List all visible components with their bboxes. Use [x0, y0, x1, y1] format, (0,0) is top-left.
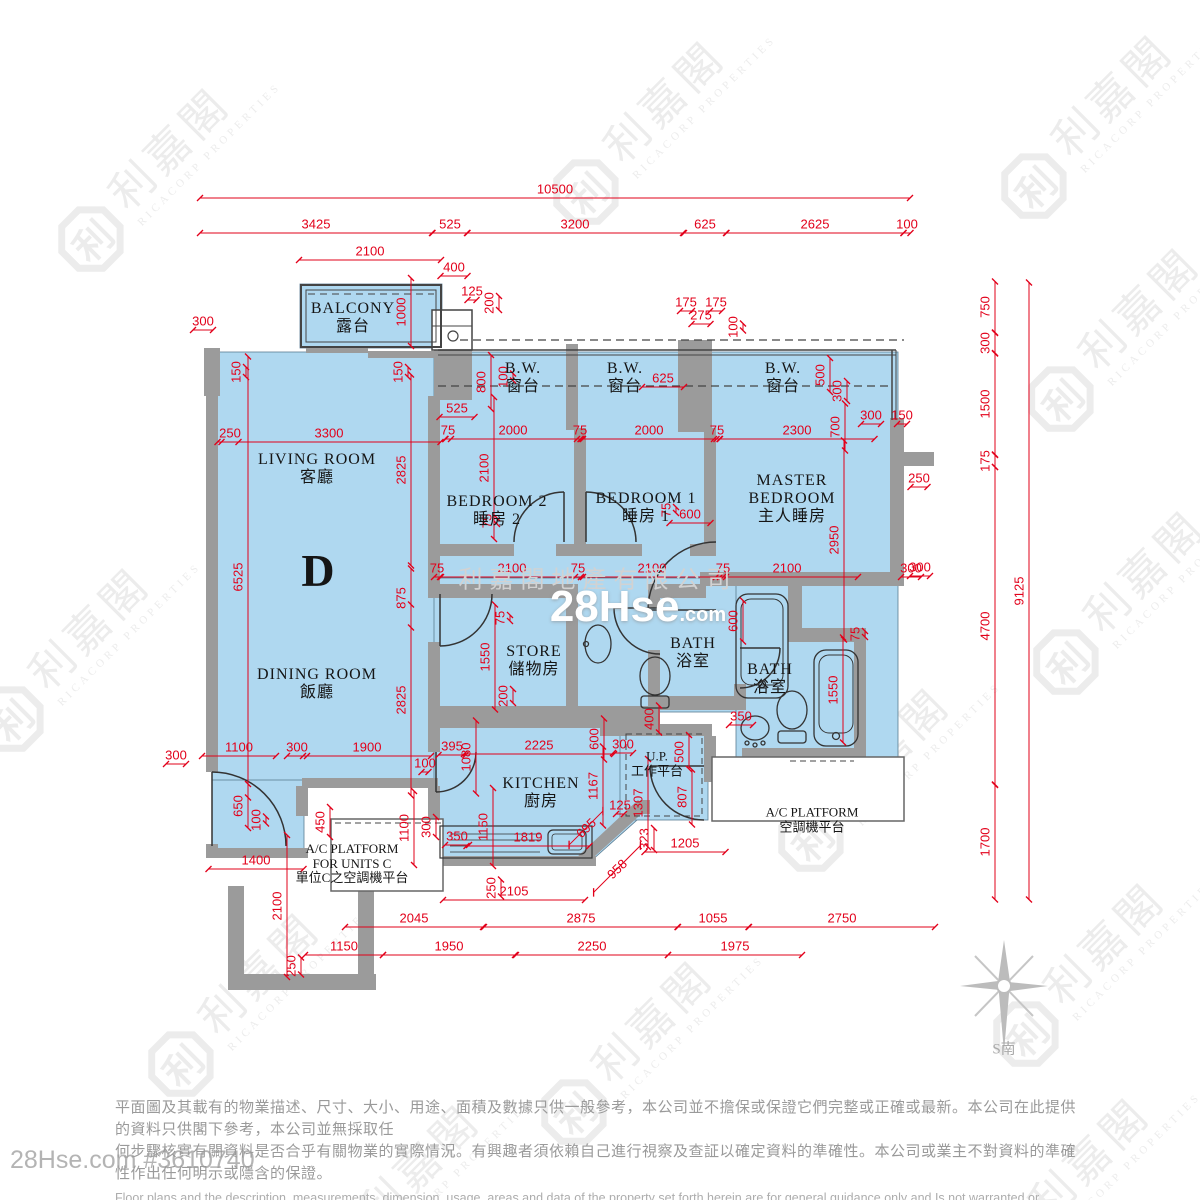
- room-label-line: MASTER: [748, 472, 835, 490]
- room-label: STORE儲物房: [506, 643, 561, 679]
- room-label: B.W.窗台: [765, 360, 801, 396]
- room-label-line: BATH: [747, 661, 793, 679]
- dim-label: 300: [979, 332, 992, 354]
- room-label: MASTERBEDROOM主人睡房: [748, 472, 835, 526]
- dim-label: 3425: [302, 218, 331, 231]
- dim-label: 150: [392, 361, 405, 383]
- floorplan-page: 利利嘉閣RICACORP PROPERTIES利利嘉閣RICACORP PROP…: [0, 0, 1200, 1200]
- dim-label: 75: [441, 424, 455, 437]
- dim-label: 1205: [671, 837, 700, 850]
- room-label-line: 浴室: [747, 679, 793, 697]
- room-label-line: 空調機平台: [766, 820, 859, 835]
- dim-label: 875: [395, 587, 408, 609]
- dim-label: 2825: [395, 456, 408, 485]
- dim-label: 250: [219, 427, 241, 440]
- dim-label: 2250: [578, 940, 607, 953]
- dim-label: 200: [483, 292, 496, 314]
- dim-label: 300: [860, 409, 882, 422]
- room-label: BALCONY露台: [311, 300, 395, 336]
- room-label-line: 工作平台: [631, 764, 683, 779]
- dim-label: 250: [485, 877, 498, 899]
- dim-label: 1975: [721, 940, 750, 953]
- dim-label: 1100: [225, 741, 253, 754]
- dim-label: 175: [979, 450, 992, 472]
- room-label-line: FOR UNITS C: [296, 857, 409, 872]
- dim-label: 75: [710, 424, 724, 437]
- room-label-line: 睡房 1: [595, 508, 696, 526]
- room-label-line: 客廳: [258, 469, 376, 487]
- disclaimer: 平面圖及其載有的物業描述、尺寸、大小、用途、面積及數據只供一般參考，本公司並不擔…: [115, 1097, 1091, 1200]
- dim-label: 150: [891, 409, 913, 422]
- dim-label: 400: [443, 261, 465, 274]
- dim-label: 100: [250, 809, 263, 831]
- dim-label: 300: [420, 816, 433, 838]
- room-label-line: 露台: [311, 318, 395, 336]
- dim-label: 3200: [561, 218, 590, 231]
- dim-label: 300: [165, 749, 187, 762]
- dim-label: 75: [849, 627, 862, 641]
- disclaimer-en-line1: Floor plans and the description, measure…: [115, 1190, 1091, 1200]
- dim-label: 4700: [979, 612, 992, 641]
- room-label-line: LIVING ROOM: [258, 451, 376, 469]
- dim-label: 1550: [827, 676, 840, 705]
- dim-label: 10500: [537, 183, 573, 196]
- room-label-line: 窗台: [765, 378, 801, 396]
- dim-label: 1700: [979, 828, 992, 857]
- disclaimer-zh-line1: 平面圖及其載有的物業描述、尺寸、大小、用途、面積及數據只供一般參考，本公司並不擔…: [115, 1097, 1091, 1141]
- dim-label: 1500: [979, 390, 992, 419]
- dim-label: 2825: [395, 686, 408, 715]
- dim-label: 600: [727, 610, 740, 632]
- dim-label: 525: [439, 218, 461, 231]
- dim-label: 400: [643, 708, 656, 730]
- room-label: BEDROOM 1睡房 1: [595, 490, 696, 526]
- room-label: A/C PLATFORMFOR UNITS C單位C之空調機平台: [296, 842, 409, 886]
- site-watermark-suffix: .com: [679, 604, 726, 626]
- room-label-line: KITCHEN: [502, 775, 579, 793]
- dim-label: 958: [605, 857, 630, 881]
- dim-label: 1150: [477, 813, 490, 841]
- dim-label: 700: [829, 416, 842, 438]
- dim-label: 100: [727, 316, 740, 338]
- dim-label: 275: [690, 309, 712, 322]
- dim-label: 695: [574, 816, 599, 840]
- room-label: BATH浴室: [670, 635, 716, 671]
- room-label-line: 單位C之空調機平台: [296, 871, 409, 886]
- dim-label: 625: [652, 372, 674, 385]
- dim-label: 600: [588, 728, 601, 750]
- dim-label: 350: [446, 830, 468, 843]
- room-label-line: 主人睡房: [748, 508, 835, 526]
- room-label-line: D: [301, 545, 334, 597]
- room-label: BATH浴室: [747, 661, 793, 697]
- dim-label: 75: [573, 424, 587, 437]
- dim-label: 807: [676, 786, 689, 808]
- dim-label: 2750: [828, 912, 857, 925]
- room-label: KITCHEN廚房: [502, 775, 579, 811]
- dim-label: 2875: [567, 912, 596, 925]
- dim-label: 250: [908, 472, 930, 485]
- room-label-line: 窗台: [607, 378, 643, 396]
- dim-label: 300: [831, 380, 844, 402]
- dim-label: 300: [900, 562, 922, 575]
- dim-label: 650: [232, 795, 245, 817]
- room-label-line: 浴室: [670, 653, 716, 671]
- room-label-line: BEDROOM: [748, 490, 835, 508]
- room-label-line: B.W.: [505, 360, 541, 378]
- dim-label: 1080: [460, 743, 473, 772]
- dim-label: 75: [430, 562, 444, 575]
- room-label: LIVING ROOM客廳: [258, 451, 376, 487]
- dim-label: 1100: [398, 814, 411, 842]
- dim-label: 100: [896, 218, 918, 231]
- dim-label: 323: [638, 828, 651, 850]
- dim-label: 2225: [525, 739, 554, 752]
- dim-label: 100: [414, 757, 436, 770]
- dim-label: 2000: [635, 424, 664, 437]
- room-label-line: 飯廳: [257, 684, 377, 702]
- dim-label: 450: [314, 811, 327, 833]
- room-label-line: STORE: [506, 643, 561, 661]
- room-label: B.W.窗台: [505, 360, 541, 396]
- dim-label: 1819: [514, 831, 543, 844]
- disclaimer-en: Floor plans and the description, measure…: [115, 1190, 1091, 1200]
- dim-label: 125: [609, 799, 631, 812]
- dim-label: 300: [192, 315, 214, 328]
- room-label: U.P.工作平台: [631, 749, 683, 778]
- room-label-line: BEDROOM 2: [446, 493, 547, 511]
- dim-label: 625: [694, 218, 716, 231]
- dim-label: 1167: [587, 772, 600, 800]
- site-watermark: 28Hse.com: [550, 582, 726, 632]
- room-label-line: 睡房 2: [446, 511, 547, 529]
- dim-label: 1307: [632, 789, 645, 818]
- room-label: BEDROOM 2睡房 2: [446, 493, 547, 529]
- dim-label: 1000: [395, 298, 408, 327]
- room-label-line: BATH: [670, 635, 716, 653]
- dim-label: 75: [494, 611, 507, 625]
- dim-label: 6525: [232, 563, 245, 592]
- room-label-line: BEDROOM 1: [595, 490, 696, 508]
- disclaimer-zh-line2: 何步驟核實有關資料是否合乎有關物業的實際情況。有興趣者須依賴自己進行視察及查証以…: [115, 1141, 1091, 1185]
- dim-label: 1055: [699, 912, 728, 925]
- dim-label: 150: [230, 361, 243, 383]
- dim-label: 1950: [435, 940, 464, 953]
- room-label-line: 廚房: [502, 793, 579, 811]
- dim-label: 2300: [783, 424, 812, 437]
- dim-label: 1400: [242, 854, 271, 867]
- dim-label: 2625: [801, 218, 830, 231]
- room-label: D: [301, 545, 334, 597]
- dim-label: 2000: [499, 424, 528, 437]
- dim-label: 2045: [400, 912, 429, 925]
- room-label-line: B.W.: [765, 360, 801, 378]
- dim-label: 1150: [330, 940, 358, 953]
- dim-label: 350: [730, 710, 752, 723]
- room-label: B.W.窗台: [607, 360, 643, 396]
- room-label: A/C PLATFORM空調機平台: [766, 805, 859, 834]
- dim-label: 9125: [1013, 577, 1026, 606]
- dim-label: 2950: [828, 526, 841, 555]
- compass-south-label: S南: [992, 1038, 1015, 1059]
- room-label-line: B.W.: [607, 360, 643, 378]
- dim-label: 2100: [271, 892, 284, 921]
- room-label-line: BALCONY: [311, 300, 395, 318]
- room-label-line: A/C PLATFORM: [766, 805, 859, 820]
- dim-label: 525: [446, 402, 468, 415]
- dim-label: 300: [286, 741, 308, 754]
- dim-label: 800: [475, 371, 488, 393]
- room-label-line: DINING ROOM: [257, 666, 377, 684]
- dim-label: 2100: [478, 454, 491, 483]
- dim-label: 2100: [356, 245, 385, 258]
- site-watermark-name: 28Hse: [550, 582, 680, 631]
- room-label: DINING ROOM飯廳: [257, 666, 377, 702]
- room-label-line: 儲物房: [506, 661, 561, 679]
- dim-label: 125: [461, 285, 483, 298]
- dim-label: 2100: [773, 562, 802, 575]
- room-label-line: A/C PLATFORM: [296, 842, 409, 857]
- dim-label: 200: [497, 685, 510, 707]
- dim-label: 3300: [315, 427, 344, 440]
- dim-label: 250: [285, 955, 298, 977]
- dim-label: 1900: [353, 741, 382, 754]
- dim-label: 500: [814, 364, 827, 386]
- dim-label: 2105: [500, 885, 529, 898]
- dim-label: 1550: [479, 643, 492, 672]
- room-label-line: 窗台: [505, 378, 541, 396]
- room-label-line: U.P.: [631, 749, 683, 764]
- dim-label: 750: [979, 296, 992, 318]
